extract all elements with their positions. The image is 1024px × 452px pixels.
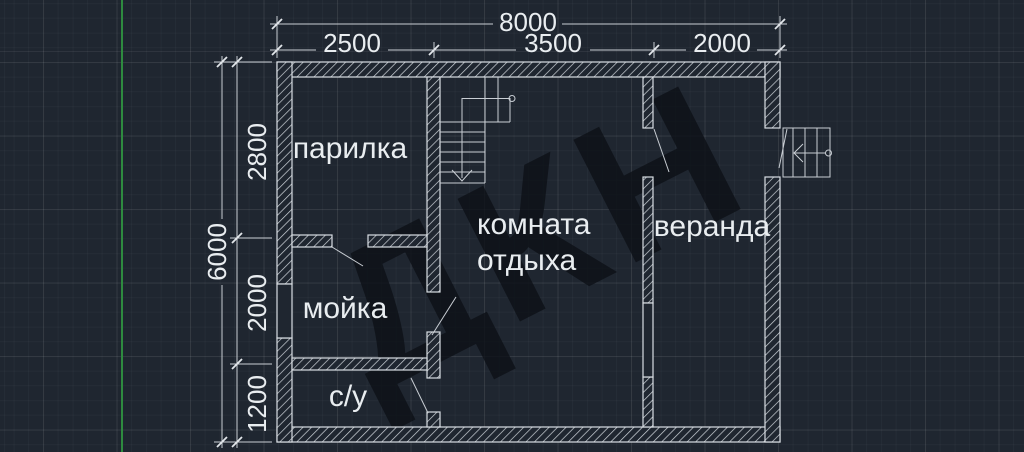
dim-top-seg1-text: 2500 xyxy=(323,28,381,58)
dim-left-seg2-text: 2000 xyxy=(242,274,272,332)
dim-left-seg3-text: 1200 xyxy=(242,375,272,433)
room-label-lounge-line1: комната xyxy=(477,208,591,241)
room-labels: парилка мойка с/у комната отдыха веранда xyxy=(293,132,771,413)
door-moyka-lounge xyxy=(432,297,456,335)
wall-partition-vertical-upper xyxy=(427,77,440,292)
window-moyka-left-wall xyxy=(277,284,292,338)
room-label-veranda: веранда xyxy=(654,210,771,243)
wall-parilka-moyka-left xyxy=(292,235,332,247)
wall-parilka-moyka-right xyxy=(368,235,427,247)
staircase-entrance xyxy=(783,128,832,177)
door-lounge-veranda xyxy=(654,129,669,172)
room-label-lounge-line2: отдыха xyxy=(477,244,577,277)
wall-exterior-right-upper xyxy=(765,62,780,128)
door-parilka-moyka xyxy=(332,247,363,266)
window-veranda-wall xyxy=(643,303,653,377)
wall-partition-vertical-lower xyxy=(427,412,440,427)
floor-plan: 8000 2500 3500 2000 6000 2800 2000 1200 … xyxy=(0,0,1024,452)
stair-walk-line xyxy=(462,99,510,179)
entrance-walk-start-circle xyxy=(826,150,832,156)
room-label-parilka: парилка xyxy=(293,132,408,165)
dim-top-seg3-text: 2000 xyxy=(693,28,751,58)
dim-left-overall-text: 6000 xyxy=(202,223,232,281)
wall-exterior-left-lower xyxy=(277,338,292,442)
drawing-canvas[interactable]: ДКН xyxy=(0,0,1024,452)
room-label-su: с/у xyxy=(329,380,367,413)
dim-top-seg2-text: 3500 xyxy=(524,28,582,58)
stair-treads xyxy=(440,77,510,183)
staircase-interior xyxy=(440,77,515,183)
wall-partition-vertical-middle xyxy=(427,332,440,378)
dim-left-seg1-text: 2800 xyxy=(242,123,272,181)
door-su xyxy=(411,378,428,413)
wall-veranda-middle xyxy=(643,177,653,303)
wall-veranda-lower xyxy=(643,377,653,427)
wall-moyka-su xyxy=(292,358,427,370)
wall-veranda-upper xyxy=(643,77,653,128)
wall-exterior-top xyxy=(277,62,780,77)
dimensions-left: 6000 2800 2000 1200 xyxy=(202,56,272,448)
wall-exterior-left-upper xyxy=(277,62,292,284)
entrance-steps-treads xyxy=(793,128,826,177)
room-label-moyka: мойка xyxy=(303,292,388,325)
dimensions-top: 8000 2500 3500 2000 xyxy=(270,7,787,58)
wall-exterior-bottom xyxy=(277,427,780,442)
